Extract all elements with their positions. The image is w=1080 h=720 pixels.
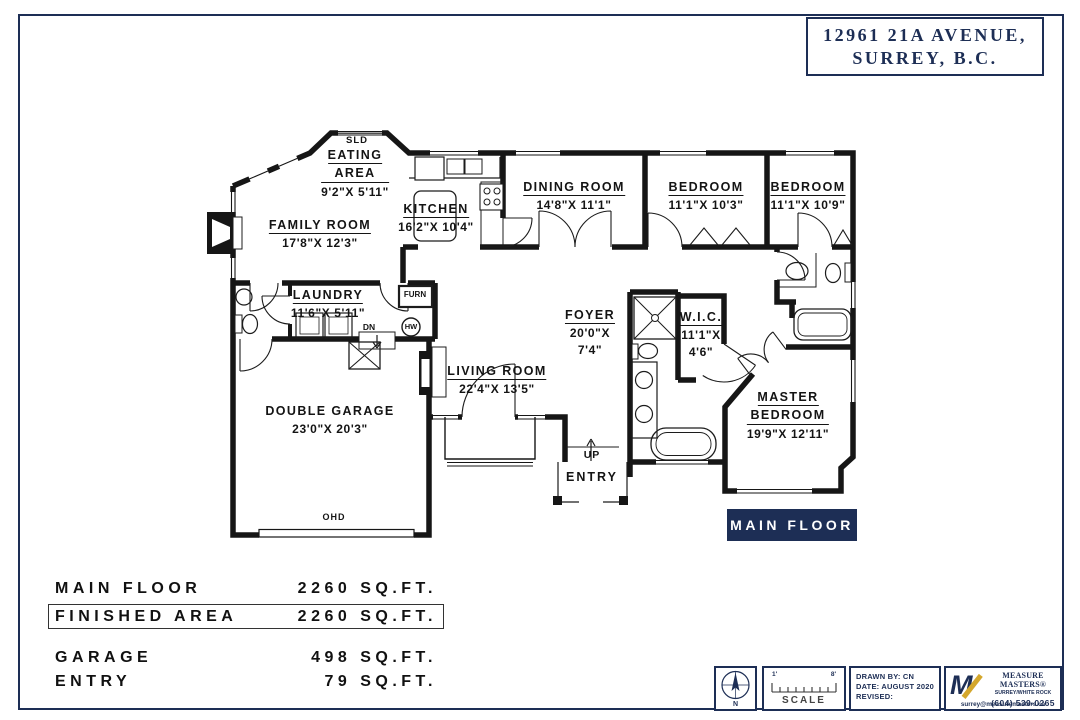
title-line1: 12961 21A AVENUE,	[823, 24, 1027, 47]
room-label-bedroom-1: BEDROOM 11'1"X 10'3"	[668, 178, 743, 213]
area-summary: MAIN FLOOR 2260 SQ.FT. FINISHED AREA 226…	[55, 580, 437, 696]
summary-row-garage: GARAGE 498 SQ.FT.	[55, 649, 437, 667]
drawn-by-text: DRAWN BY: CN	[856, 672, 934, 682]
main-bath-fixtures	[779, 253, 851, 340]
scale-right-tick: 8'	[831, 671, 836, 678]
fireplace-living-room	[419, 347, 446, 397]
room-label-foyer: FOYER 20'0"X 7'4"	[565, 306, 615, 357]
furnace-label: FURN	[404, 290, 426, 299]
company-logo-box: M MEASURE MASTERS® SURREY/WHITE ROCK (60…	[944, 666, 1062, 711]
summary-label: ENTRY	[55, 673, 131, 691]
scale-left-tick: 1'	[772, 671, 777, 678]
compass-box: N	[714, 666, 757, 711]
stairs-up-label: UP	[584, 449, 601, 461]
compass-icon	[716, 669, 755, 703]
stairs-down-label: DN	[363, 322, 375, 332]
hot-water-label: HW	[405, 322, 418, 331]
room-label-kitchen: KITCHEN 16'2"X 10'4"	[398, 200, 474, 235]
room-label-eating-area: EATING AREA 9'2"X 5'11"	[321, 146, 389, 199]
slider-door-label: SLD	[346, 135, 368, 146]
summary-value: 2260 SQ.FT.	[298, 580, 437, 598]
room-label-master-bedroom: MASTER BEDROOM 19'9"X 12'11"	[747, 388, 829, 441]
entry-label: ENTRY	[566, 470, 618, 484]
summary-value: 2260 SQ.FT.	[298, 608, 437, 626]
company-name: MEASURE MASTERS®	[984, 671, 1062, 689]
revised-text: REVISED:	[856, 692, 934, 702]
summary-value: 498 SQ.FT.	[311, 649, 437, 667]
compass-north-label: N	[733, 701, 738, 708]
scale-box: 1' 8' SCALE	[762, 666, 846, 711]
summary-label: FINISHED AREA	[55, 608, 237, 626]
date-text: DATE: AUGUST 2020	[856, 682, 934, 692]
summary-row-entry: ENTRY 79 SQ.FT.	[55, 673, 437, 691]
company-email: surrey@measuremasters.ca	[946, 701, 1060, 708]
title-line2: SURREY, B.C.	[852, 47, 997, 70]
summary-value: 79 SQ.FT.	[324, 673, 437, 691]
measure-masters-logo-icon: M	[950, 672, 984, 700]
summary-row-finished-area: FINISHED AREA 2260 SQ.FT.	[48, 604, 444, 630]
summary-label: MAIN FLOOR	[55, 580, 201, 598]
room-label-bedroom-2: BEDROOM 11'1"X 10'9"	[770, 178, 845, 213]
drawing-info-box: DRAWN BY: CN DATE: AUGUST 2020 REVISED:	[849, 666, 941, 711]
room-label-double-garage: DOUBLE GARAGE 23'0"X 20'3"	[265, 402, 394, 436]
summary-row-main-floor: MAIN FLOOR 2260 SQ.FT.	[55, 580, 437, 598]
overhead-door-label: OHD	[323, 512, 346, 522]
summary-label: GARAGE	[55, 649, 152, 667]
room-label-living-room: LIVING ROOM 22'4"X 13'5"	[447, 362, 546, 397]
title-block: 12961 21A AVENUE, SURREY, B.C.	[806, 17, 1044, 76]
room-label-family-room: FAMILY ROOM 17'8"X 12'3"	[269, 216, 371, 251]
room-label-laundry: LAUNDRY 11'6"X 5'11"	[291, 286, 365, 321]
company-region: SURREY/WHITE ROCK	[984, 690, 1062, 696]
floor-name-badge: MAIN FLOOR	[727, 509, 857, 541]
room-label-wic: W.I.C. 11'1"X 4'6"	[680, 308, 722, 359]
room-label-dining-room: DINING ROOM 14'8"X 11'1"	[523, 178, 625, 213]
floorplan-page: 12961 21A AVENUE, SURREY, B.C.	[0, 0, 1080, 720]
scale-label: SCALE	[782, 695, 826, 706]
fireplace-family-room	[207, 212, 242, 254]
